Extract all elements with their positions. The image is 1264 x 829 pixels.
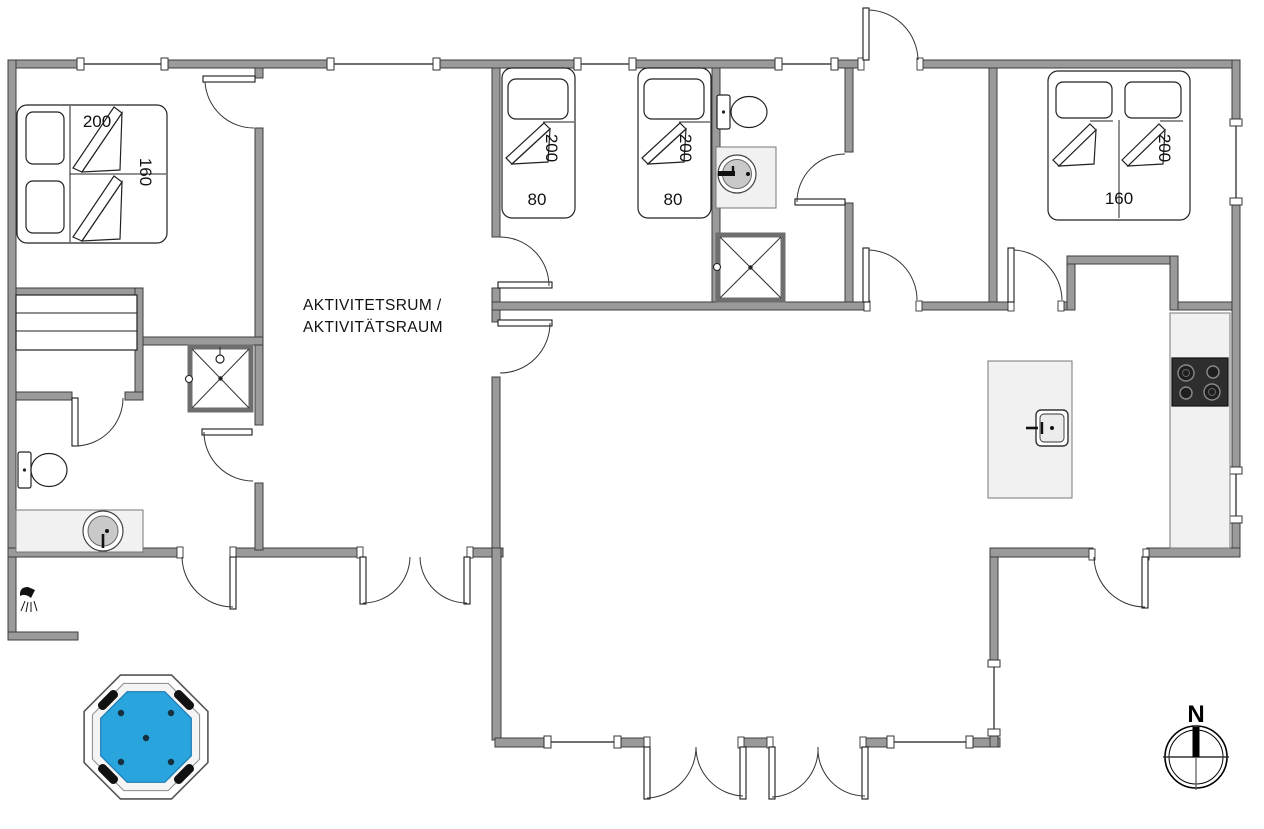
bed-left-depth-label: 160 — [136, 158, 155, 186]
outdoor-shower-icon — [20, 587, 37, 612]
floor-plan-page: 200 160 AKTIVITETSRUM / AKTIVITÄTSRAUM 2… — [0, 0, 1264, 824]
pillow — [644, 79, 704, 119]
compass-rose: N — [1163, 701, 1229, 790]
pillow — [26, 112, 64, 164]
sink-west — [16, 510, 143, 552]
kitchen-counter — [1170, 313, 1230, 548]
bed-left-width-label: 200 — [83, 112, 111, 131]
shower-head-icon — [216, 355, 224, 363]
shower-knob-icon — [714, 264, 721, 271]
kids-bed2-width-label: 80 — [664, 190, 683, 209]
kitchen-island — [988, 361, 1072, 498]
stove-icon — [1172, 358, 1228, 406]
shower-knob-icon — [186, 376, 193, 383]
compass-north-pointer — [1193, 727, 1200, 757]
shower-west — [186, 347, 252, 410]
bed-right-width-label: 160 — [1105, 189, 1133, 208]
bed-right-length-label: 200 — [1155, 134, 1174, 162]
shower-bathroom — [714, 235, 784, 300]
toilet-west — [18, 452, 67, 488]
pillow — [508, 79, 568, 119]
activity-room-label-line1: AKTIVITETSRUM / — [303, 297, 442, 314]
toilet-bathroom — [717, 95, 767, 129]
sink-bathroom — [716, 147, 776, 208]
kids-bed1-width-label: 80 — [528, 190, 547, 209]
pillow — [1056, 82, 1112, 118]
compass-north-label: N — [1187, 701, 1204, 728]
pillow — [26, 181, 64, 233]
floor-plan-drawing: 200 160 AKTIVITETSRUM / AKTIVITÄTSRAUM 2… — [0, 0, 1264, 824]
kids-bed1-length-label: 200 — [542, 134, 561, 162]
kids-bed2-length-label: 200 — [676, 134, 695, 162]
hot-tub — [84, 675, 208, 799]
sauna-benches — [16, 295, 137, 350]
activity-room-label-line2: AKTIVITÄTSRAUM — [303, 319, 443, 336]
pillow — [1125, 82, 1181, 118]
